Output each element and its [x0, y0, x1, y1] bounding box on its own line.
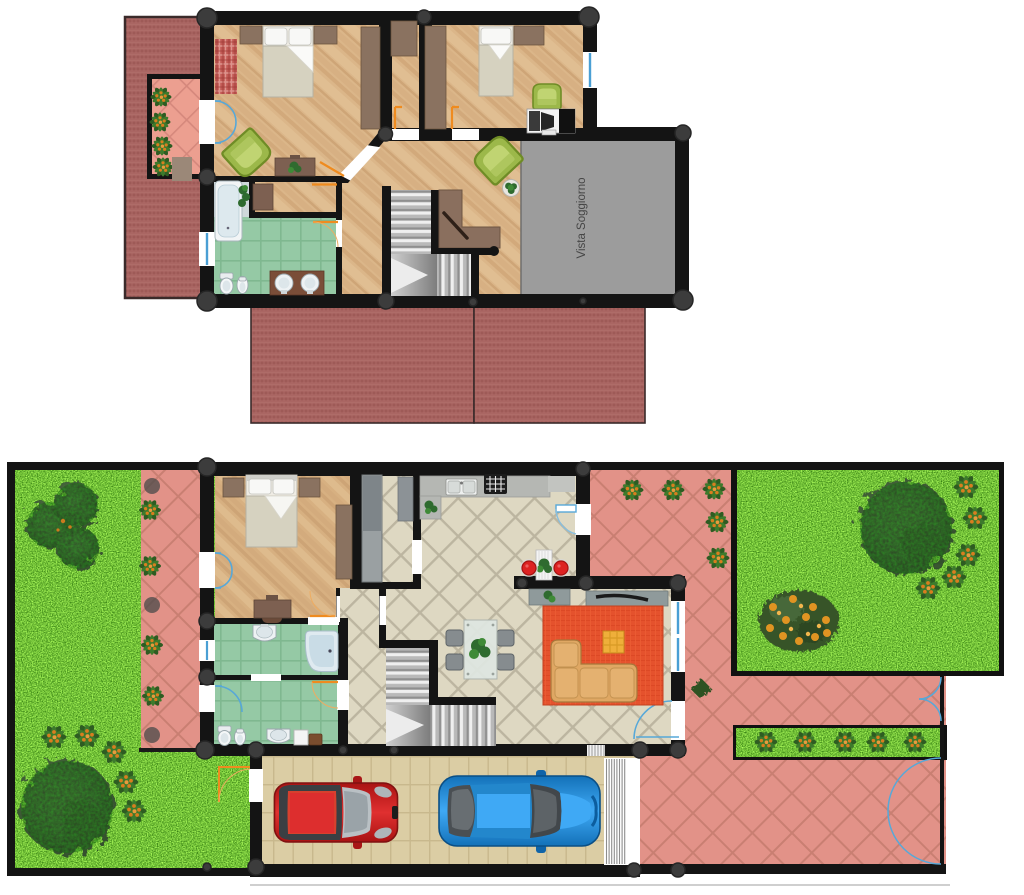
svg-text:Vista Soggiorno: Vista Soggiorno	[576, 178, 588, 259]
